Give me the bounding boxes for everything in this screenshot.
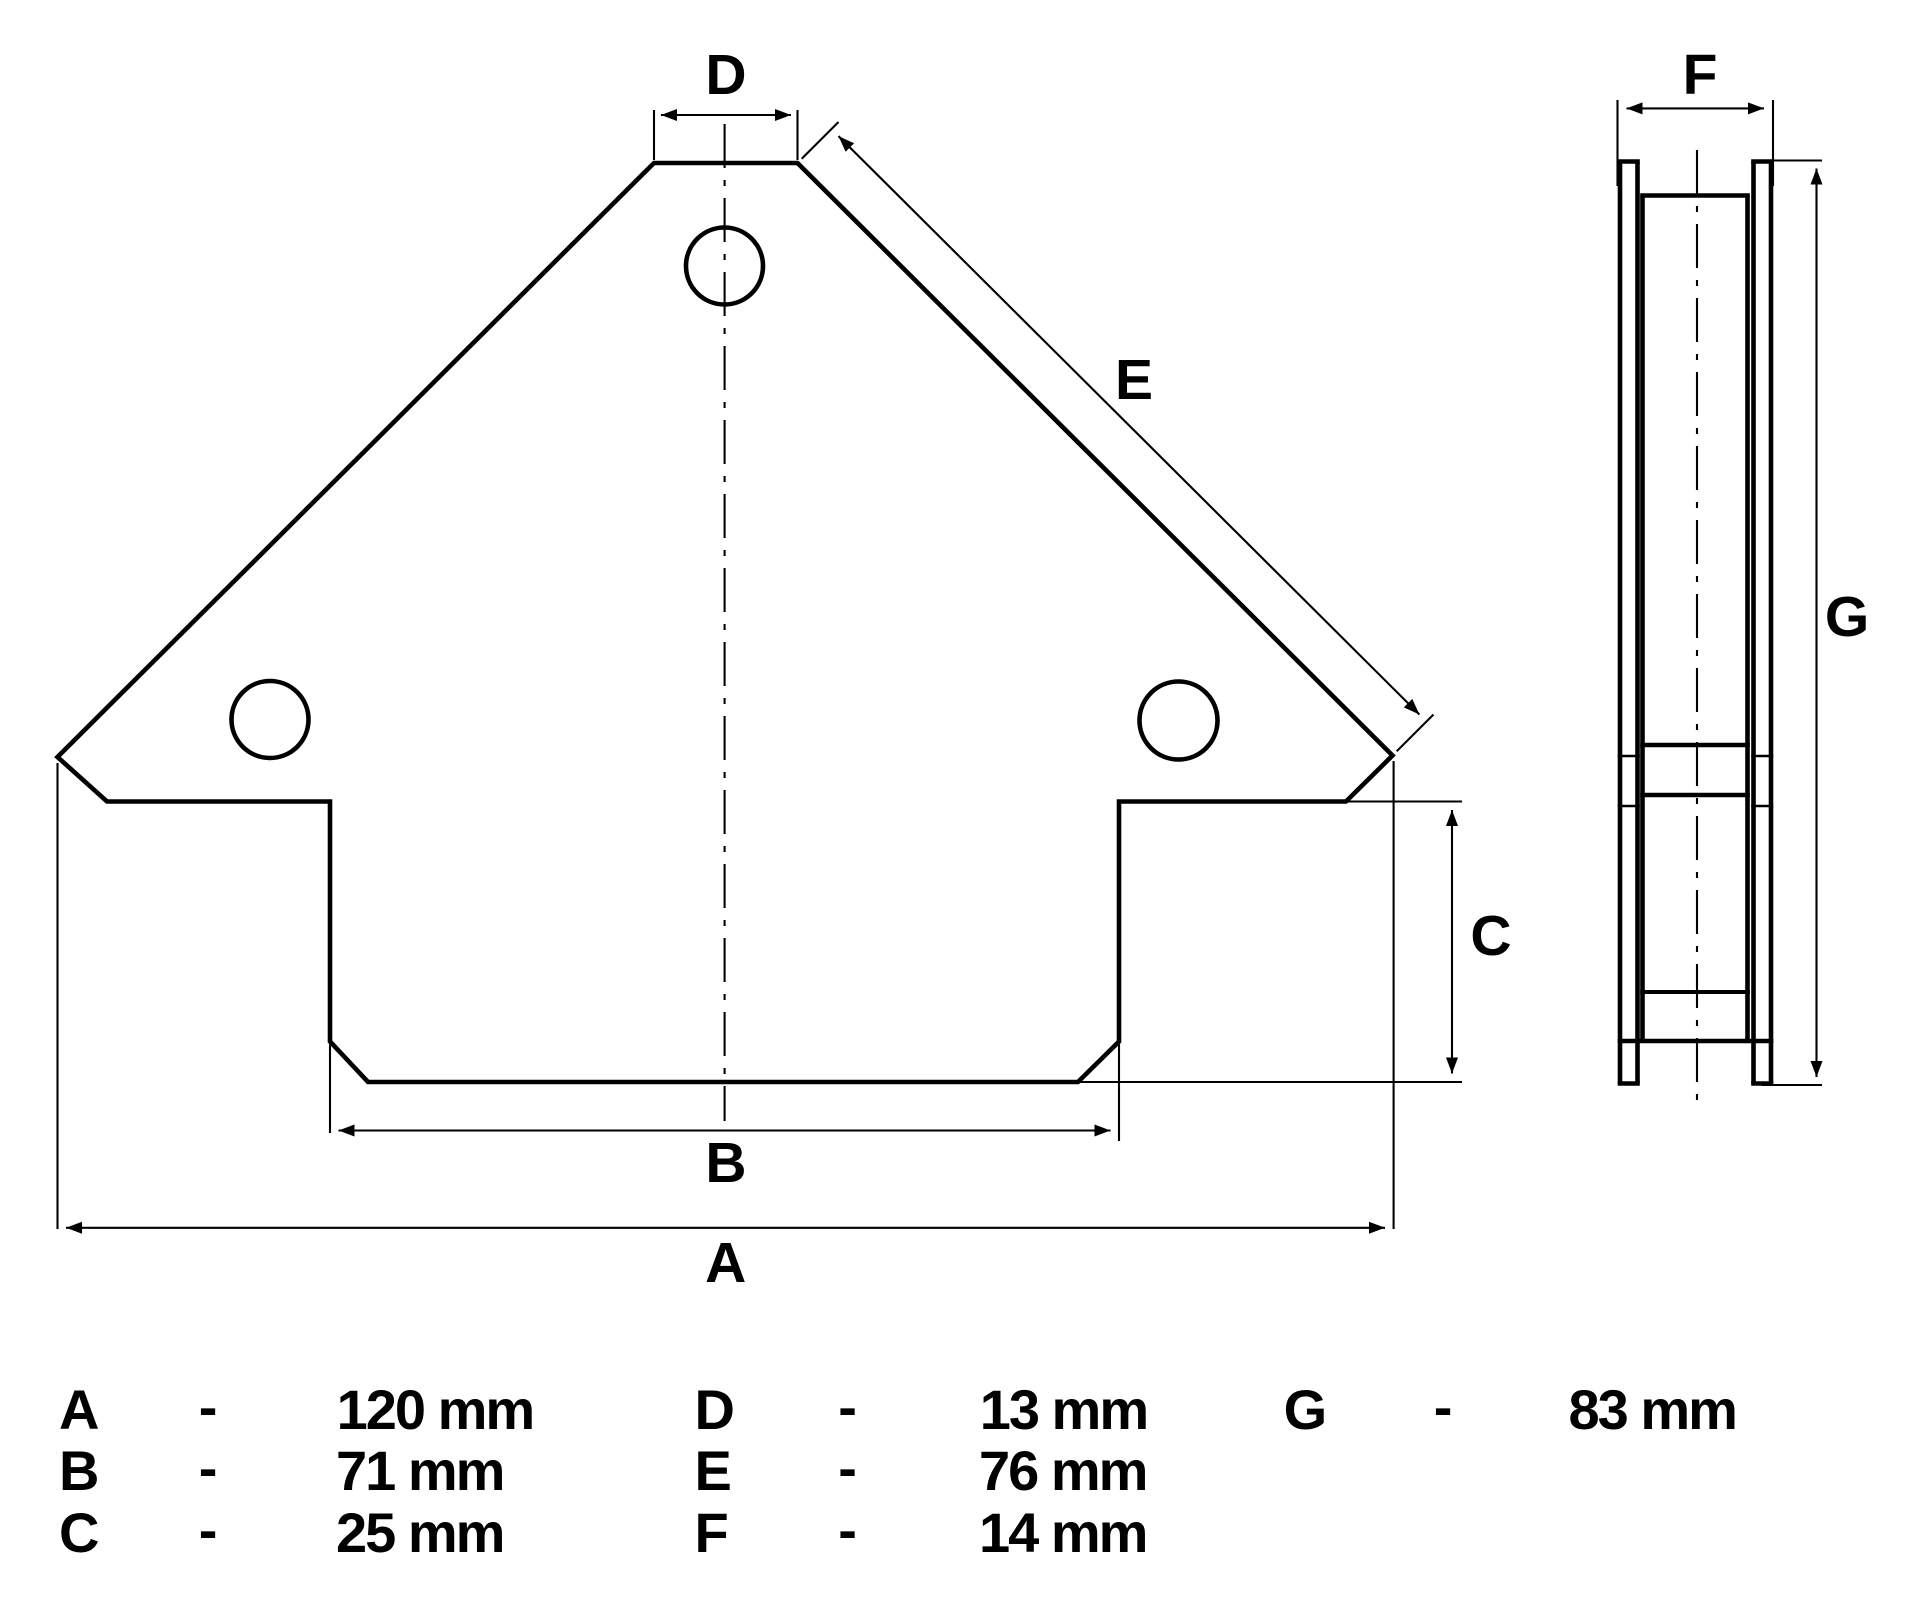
svg-text:G: G: [1284, 1378, 1328, 1441]
svg-text:A: A: [59, 1378, 99, 1441]
svg-text:B: B: [705, 1131, 746, 1195]
svg-text:76 mm: 76 mm: [979, 1439, 1146, 1502]
svg-text:-: -: [838, 1375, 857, 1438]
svg-text:B: B: [59, 1439, 99, 1502]
svg-text:25 mm: 25 mm: [336, 1501, 503, 1564]
svg-text:-: -: [199, 1498, 218, 1561]
svg-text:71 mm: 71 mm: [336, 1439, 503, 1502]
svg-text:83 mm: 83 mm: [1569, 1378, 1736, 1441]
svg-text:E: E: [695, 1439, 732, 1502]
svg-text:F: F: [1683, 43, 1718, 107]
svg-text:G: G: [1825, 585, 1869, 649]
svg-text:-: -: [1434, 1375, 1453, 1438]
svg-text:A: A: [705, 1231, 746, 1295]
svg-text:13 mm: 13 mm: [980, 1378, 1147, 1441]
svg-text:-: -: [838, 1436, 857, 1499]
svg-text:-: -: [199, 1375, 218, 1438]
svg-text:-: -: [199, 1436, 218, 1499]
svg-text:F: F: [695, 1501, 729, 1564]
svg-text:C: C: [59, 1501, 99, 1564]
svg-text:C: C: [1470, 904, 1511, 968]
svg-text:D: D: [705, 43, 746, 107]
svg-text:E: E: [1115, 348, 1153, 412]
svg-text:120 mm: 120 mm: [337, 1378, 534, 1441]
svg-text:D: D: [695, 1378, 735, 1441]
svg-text:14 mm: 14 mm: [979, 1501, 1146, 1564]
svg-text:-: -: [838, 1498, 857, 1561]
